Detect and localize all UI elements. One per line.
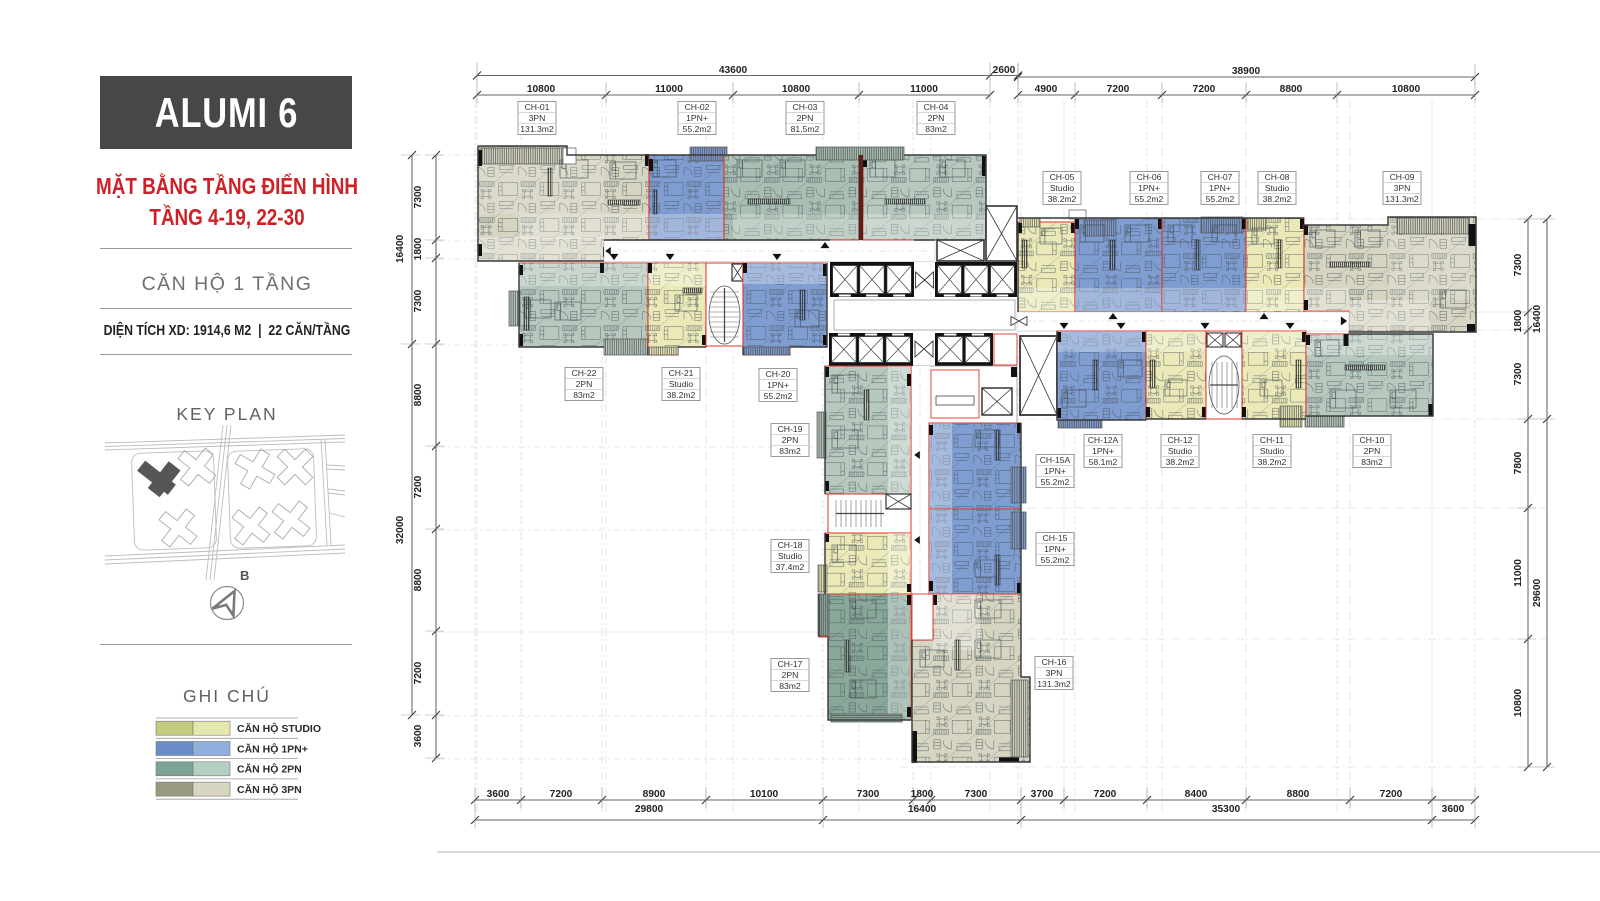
- svg-text:Studio: Studio: [1265, 183, 1290, 193]
- svg-text:3600: 3600: [487, 789, 510, 800]
- svg-text:CH-04: CH-04: [924, 102, 949, 112]
- svg-text:55.2m2: 55.2m2: [764, 391, 793, 401]
- svg-text:1800: 1800: [1513, 309, 1524, 332]
- svg-text:10100: 10100: [750, 789, 779, 800]
- svg-text:7200: 7200: [1193, 84, 1216, 95]
- svg-text:10800: 10800: [527, 84, 556, 95]
- svg-text:CH-09: CH-09: [1390, 172, 1415, 182]
- svg-text:7800: 7800: [1513, 451, 1524, 474]
- svg-text:2600: 2600: [993, 65, 1016, 76]
- svg-text:3PN: 3PN: [1046, 668, 1063, 678]
- svg-text:7200: 7200: [413, 661, 424, 684]
- svg-text:11000: 11000: [1513, 559, 1524, 587]
- svg-text:83m2: 83m2: [1361, 457, 1383, 467]
- svg-text:2PN: 2PN: [576, 379, 593, 389]
- svg-text:CH-12: CH-12: [1168, 435, 1193, 445]
- svg-text:7300: 7300: [965, 789, 988, 800]
- svg-text:11000: 11000: [910, 84, 938, 95]
- svg-text:8400: 8400: [1185, 789, 1208, 800]
- svg-text:131.3m2: 131.3m2: [1385, 194, 1419, 204]
- svg-text:38.2m2: 38.2m2: [1263, 194, 1292, 204]
- svg-text:Studio: Studio: [778, 551, 803, 561]
- svg-text:7300: 7300: [1513, 253, 1524, 276]
- svg-text:CH-05: CH-05: [1050, 172, 1075, 182]
- svg-text:16400: 16400: [1532, 305, 1543, 334]
- svg-text:3PN: 3PN: [529, 113, 546, 123]
- svg-text:8900: 8900: [643, 789, 666, 800]
- svg-text:55.2m2: 55.2m2: [683, 124, 712, 134]
- svg-text:29600: 29600: [1532, 579, 1543, 608]
- svg-text:1PN+: 1PN+: [1044, 466, 1066, 476]
- svg-text:1800: 1800: [413, 237, 424, 260]
- svg-text:7200: 7200: [413, 475, 424, 498]
- svg-text:CH-17: CH-17: [778, 659, 803, 669]
- svg-text:2PN: 2PN: [782, 435, 799, 445]
- svg-text:2PN: 2PN: [1364, 446, 1381, 456]
- svg-text:55.2m2: 55.2m2: [1041, 555, 1070, 565]
- svg-text:CH-22: CH-22: [572, 368, 597, 378]
- svg-text:1800: 1800: [911, 789, 934, 800]
- svg-text:83m2: 83m2: [573, 390, 595, 400]
- svg-text:83m2: 83m2: [779, 446, 801, 456]
- svg-text:Studio: Studio: [1260, 446, 1285, 456]
- svg-text:CH-10: CH-10: [1360, 435, 1385, 445]
- svg-text:38.2m2: 38.2m2: [1258, 457, 1287, 467]
- svg-text:CH-01: CH-01: [525, 102, 550, 112]
- svg-text:CH-21: CH-21: [669, 368, 694, 378]
- svg-text:1PN+: 1PN+: [767, 380, 789, 390]
- svg-text:55.2m2: 55.2m2: [1135, 194, 1164, 204]
- svg-text:Studio: Studio: [1168, 446, 1193, 456]
- svg-text:3PN: 3PN: [1394, 183, 1411, 193]
- svg-text:1PN+: 1PN+: [1209, 183, 1231, 193]
- svg-text:7200: 7200: [1107, 84, 1130, 95]
- svg-text:8800: 8800: [1287, 789, 1310, 800]
- svg-text:7200: 7200: [550, 789, 573, 800]
- svg-text:CĂN HỘ 2PN: CĂN HỘ 2PN: [237, 763, 302, 776]
- svg-text:3600: 3600: [413, 724, 424, 747]
- svg-text:38.2m2: 38.2m2: [1166, 457, 1195, 467]
- svg-text:16400: 16400: [395, 235, 406, 264]
- svg-text:37.4m2: 37.4m2: [776, 562, 805, 572]
- svg-text:CĂN HỘ 1PN+: CĂN HỘ 1PN+: [237, 742, 308, 755]
- svg-text:1PN+: 1PN+: [1044, 544, 1066, 554]
- svg-text:43600: 43600: [719, 65, 748, 76]
- svg-text:16400: 16400: [908, 804, 937, 815]
- svg-text:83m2: 83m2: [925, 124, 947, 134]
- svg-text:CH-11: CH-11: [1260, 435, 1284, 445]
- svg-text:CH-06: CH-06: [1137, 172, 1162, 182]
- svg-text:1PN+: 1PN+: [686, 113, 708, 123]
- svg-text:32000: 32000: [395, 516, 406, 545]
- svg-text:CH-15A: CH-15A: [1040, 455, 1071, 465]
- svg-text:10800: 10800: [782, 84, 811, 95]
- svg-text:B: B: [240, 570, 249, 583]
- svg-text:38.2m2: 38.2m2: [1048, 194, 1077, 204]
- svg-text:CH-15: CH-15: [1043, 533, 1068, 543]
- svg-text:2PN: 2PN: [797, 113, 814, 123]
- svg-text:CH-12A: CH-12A: [1088, 435, 1119, 445]
- svg-text:CĂN HỘ 3PN: CĂN HỘ 3PN: [237, 783, 302, 796]
- svg-text:CH-16: CH-16: [1042, 657, 1067, 667]
- svg-text:CH-08: CH-08: [1265, 172, 1290, 182]
- svg-text:1PN+: 1PN+: [1092, 446, 1114, 456]
- svg-text:CH-18: CH-18: [778, 540, 803, 550]
- svg-text:8800: 8800: [1280, 84, 1303, 95]
- svg-text:10800: 10800: [1513, 689, 1524, 718]
- svg-text:7200: 7200: [1380, 789, 1403, 800]
- svg-text:38.2m2: 38.2m2: [667, 390, 696, 400]
- svg-text:10800: 10800: [1392, 84, 1421, 95]
- svg-text:29800: 29800: [635, 804, 664, 815]
- svg-text:CH-03: CH-03: [793, 102, 818, 112]
- svg-text:3600: 3600: [1442, 804, 1465, 815]
- svg-text:2PN: 2PN: [928, 113, 945, 123]
- svg-text:1PN+: 1PN+: [1138, 183, 1160, 193]
- svg-text:38900: 38900: [1232, 66, 1261, 77]
- svg-text:55.2m2: 55.2m2: [1206, 194, 1235, 204]
- svg-text:CH-02: CH-02: [685, 102, 710, 112]
- svg-text:4900: 4900: [1035, 84, 1058, 95]
- svg-text:131.3m2: 131.3m2: [1037, 679, 1071, 689]
- svg-text:55.2m2: 55.2m2: [1041, 477, 1070, 487]
- svg-text:7300: 7300: [413, 289, 424, 312]
- svg-text:58.1m2: 58.1m2: [1089, 457, 1118, 467]
- svg-text:81.5m2: 81.5m2: [791, 124, 820, 134]
- svg-text:7300: 7300: [413, 185, 424, 208]
- svg-text:CĂN HỘ STUDIO: CĂN HỘ STUDIO: [237, 722, 321, 735]
- svg-text:Studio: Studio: [1050, 183, 1075, 193]
- svg-text:131.3m2: 131.3m2: [520, 124, 554, 134]
- svg-text:CH-07: CH-07: [1208, 172, 1233, 182]
- svg-text:7300: 7300: [857, 789, 880, 800]
- svg-text:3700: 3700: [1031, 789, 1054, 800]
- svg-text:2PN: 2PN: [782, 670, 799, 680]
- svg-text:83m2: 83m2: [779, 681, 801, 691]
- svg-text:7300: 7300: [1513, 362, 1524, 385]
- svg-text:7200: 7200: [1094, 789, 1117, 800]
- svg-text:CH-19: CH-19: [778, 424, 803, 434]
- svg-text:35300: 35300: [1212, 804, 1241, 815]
- svg-text:8800: 8800: [413, 568, 424, 591]
- svg-text:11000: 11000: [655, 84, 683, 95]
- svg-text:8800: 8800: [413, 383, 424, 406]
- svg-text:CH-20: CH-20: [766, 369, 791, 379]
- svg-text:Studio: Studio: [669, 379, 694, 389]
